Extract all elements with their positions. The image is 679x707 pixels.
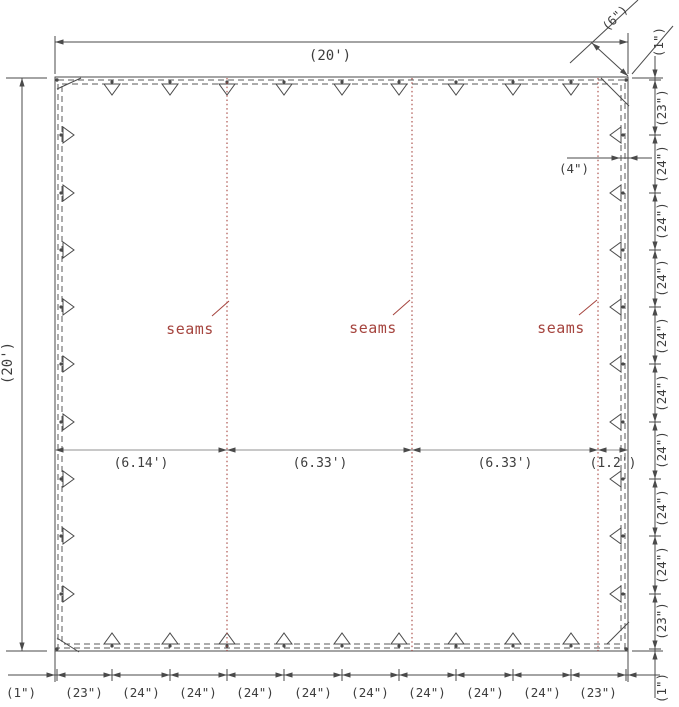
grommet-icon [563, 80, 579, 95]
dim-label-right-11: (1") [654, 673, 669, 703]
seam-leader-3 [579, 300, 597, 315]
grommet-icon [162, 633, 178, 648]
grommet-icon [276, 633, 292, 648]
corner-grommet-icon [624, 78, 627, 81]
grommet-icon [448, 633, 464, 648]
hem-stitch-line-inner [62, 84, 621, 644]
hem-stitch-line-outer [58, 80, 625, 648]
drawing-canvas: seams seams seams (20') (20') (6.14') (6… [0, 0, 679, 707]
seam-leader-2 [393, 300, 410, 315]
dimension-hem-width: (4") [559, 155, 652, 176]
dim-label-bottom-5: (24") [294, 685, 332, 700]
dim-label-panel-2: (6.33') [293, 456, 348, 471]
grommet-icon [610, 356, 625, 372]
grommet-icon [162, 80, 178, 95]
dim-label-bottom-7: (24") [408, 685, 446, 700]
seam-label-3: seams [537, 319, 585, 337]
dim-label-right-6: (24") [654, 374, 669, 412]
tarp-technical-drawing: seams seams seams (20') (20') (6.14') (6… [0, 0, 679, 707]
dim-label-left-height: (20') [0, 342, 16, 384]
dim-label-right-8: (24") [654, 489, 669, 527]
dimension-panel-widths: (6.14') (6.33') (6.33') (1.2') [55, 447, 636, 471]
dim-label-bottom-2: (24") [122, 685, 160, 700]
corner-grommet-icon [624, 647, 627, 650]
dim-label-right-1: (23") [654, 89, 669, 127]
dimension-top-width: (20') [55, 33, 628, 74]
grommet-icon [563, 633, 579, 648]
dim-label-right-3: (24") [654, 202, 669, 240]
grommet-icon [610, 127, 625, 143]
dim-label-panel-4: (1.2') [590, 456, 637, 471]
grommet-icon [59, 242, 74, 258]
dim-label-bottom-6: (24") [351, 685, 389, 700]
grommet-icon [334, 80, 350, 95]
dimension-left-height: (20') [0, 78, 47, 651]
grommet-icon [610, 299, 625, 315]
grommet-icon [610, 528, 625, 544]
grommet-tabs [59, 80, 624, 647]
dim-label-right-10: (23") [654, 602, 669, 640]
dimension-bottom-spacing: (1") (23") (24") (24") (24") (24") (24")… [6, 651, 660, 700]
dim-label-right-2: (24") [654, 145, 669, 183]
grommet-icon [505, 633, 521, 648]
grommet-icon [276, 80, 292, 95]
dimension-right-spacing: (1") (23") (24") (24") (24") (24") (24")… [632, 27, 669, 703]
grommet-icon [610, 586, 625, 602]
grommet-icon [610, 414, 625, 430]
grommet-icon [391, 80, 407, 95]
dim-label-bottom-1: (23") [65, 685, 103, 700]
dim-label-bottom-3: (24") [179, 685, 217, 700]
corner-grommet-icon [55, 647, 58, 650]
grommet-icon [448, 80, 464, 95]
dim-label-right-7: (24") [654, 431, 669, 469]
dim-label-bottom-8: (24") [466, 685, 504, 700]
dim-label-bottom-0: (1") [6, 685, 36, 700]
dim-label-right-4: (24") [654, 259, 669, 297]
dim-label-panel-1: (6.14') [114, 456, 169, 471]
grommet-icon [610, 185, 625, 201]
dim-label-right-5: (24") [654, 317, 669, 355]
tarp-outer-edge [55, 77, 628, 651]
grommet-icon [104, 633, 120, 648]
tarp-outline [55, 77, 629, 652]
dim-label-right-0: (1") [651, 27, 666, 57]
grommet-icon [610, 471, 625, 487]
dim-label-bottom-10: (23") [579, 685, 617, 700]
dim-label-hem-width: (4") [559, 161, 589, 176]
dim-label-panel-3: (6.33') [478, 456, 533, 471]
seam-label-1: seams [166, 320, 214, 338]
dim-label-bottom-9: (24") [523, 685, 561, 700]
fabric-seams: seams seams seams [166, 78, 598, 651]
corner-seam-bottom-right [607, 622, 629, 644]
grommet-icon [219, 633, 235, 648]
dim-label-top-width: (20') [309, 48, 351, 64]
seam-leader-1 [212, 301, 229, 316]
seam-label-2: seams [349, 319, 397, 337]
dim-label-corner-diagonal: (6") [599, 2, 631, 34]
grommet-icon [104, 80, 120, 95]
corner-seam-top-right [601, 78, 629, 106]
corner-seam-bottom-left [57, 638, 79, 652]
dim-label-right-9: (24") [654, 546, 669, 584]
grommet-icon [334, 633, 350, 648]
grommet-icon [505, 80, 521, 95]
dim-label-bottom-4: (24") [236, 685, 274, 700]
corner-grommet-icon [55, 78, 58, 81]
grommet-icon [59, 471, 74, 487]
grommet-icon [391, 633, 407, 648]
grommet-icon [610, 242, 625, 258]
